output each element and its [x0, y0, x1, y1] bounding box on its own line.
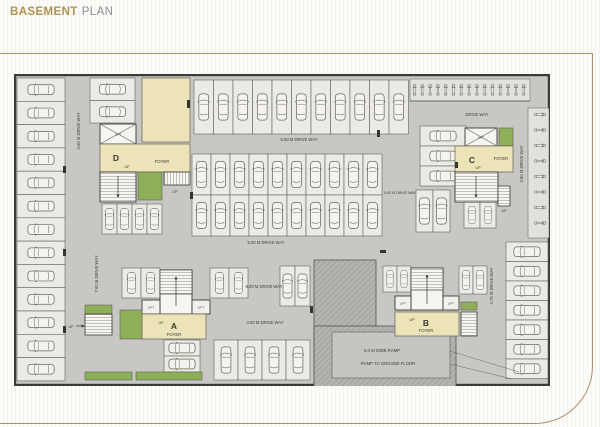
car-icon	[514, 246, 540, 258]
parking-stall	[17, 311, 65, 334]
car-icon	[127, 273, 136, 294]
stairs-a-entry	[85, 314, 112, 335]
car-icon	[282, 274, 293, 298]
car-icon	[196, 202, 208, 228]
parking-stall	[350, 80, 370, 134]
car-icon	[436, 198, 448, 224]
car-icon	[348, 202, 360, 228]
car-icon	[291, 202, 303, 228]
car-icon	[348, 161, 360, 187]
car-icon	[329, 161, 341, 187]
lift-a-left-label: LIFT	[148, 306, 154, 310]
label-driveway-280: 2.80 M DRIVE WAY	[519, 145, 524, 182]
car-icon	[28, 294, 54, 306]
parking-stall	[17, 334, 65, 357]
parking-stall	[141, 268, 160, 298]
parking-stall	[389, 80, 409, 134]
block-a-label: A	[171, 321, 177, 331]
parking-stall	[17, 288, 65, 311]
parking-stall	[233, 80, 253, 134]
car-icon	[234, 273, 243, 294]
parking-stall	[249, 195, 268, 236]
label-ramp-dest: RAMP TO GROUND FLOOR	[361, 361, 415, 366]
car-icon	[150, 209, 159, 230]
parking-stall	[306, 195, 325, 236]
parking-stall	[363, 154, 382, 195]
car-icon	[28, 247, 54, 259]
landscape-a-entry	[85, 305, 112, 314]
page-background: { "header": { "title_bold": "BASEMENT", …	[0, 0, 600, 427]
column-marker	[190, 192, 193, 199]
car-icon	[310, 161, 322, 187]
car-icon	[476, 271, 484, 290]
car-icon	[105, 209, 114, 230]
label-driveway-760: 7.60 M DRIVE WAY	[94, 255, 99, 292]
car-icon	[354, 94, 366, 120]
landscape-strip	[85, 372, 132, 380]
parking-stall	[506, 320, 548, 340]
car-icon	[334, 94, 346, 120]
parking-stall	[344, 154, 363, 195]
parking-stall	[211, 154, 230, 195]
parking-stall	[370, 80, 390, 134]
car-icon	[99, 83, 125, 95]
car-icon	[28, 224, 54, 236]
basement-floor-plan: 4.50 M DRIVE WAY 7.60 M DRIVE WAY 2.80 M…	[14, 74, 550, 386]
parking-stall	[420, 126, 466, 146]
stairs-b-entry	[461, 312, 477, 336]
car-icon	[28, 130, 54, 142]
car-icon	[400, 270, 408, 287]
parking-stall	[506, 359, 548, 379]
car-icon	[28, 107, 54, 119]
car-icon	[329, 202, 341, 228]
parking-stall	[506, 281, 548, 301]
parking-stall	[459, 266, 473, 294]
car-icon	[28, 317, 54, 329]
parking-stall	[17, 148, 65, 171]
lift-a-right-label: LIFT	[198, 306, 204, 310]
car-icon	[514, 304, 540, 316]
car-icon	[514, 324, 540, 336]
stairs-c-side	[498, 186, 510, 206]
label-driveway-400: 4.00 M DRIVE WAY	[247, 320, 284, 325]
car-icon	[393, 94, 405, 120]
parking-stall	[325, 195, 344, 236]
label-driveway-450: 4.50 M DRIVE WAY	[76, 112, 81, 149]
parking-stall	[17, 195, 65, 218]
parking-stall	[464, 202, 480, 228]
parking-stall	[102, 204, 117, 234]
block-c-label: C	[469, 155, 475, 165]
parking-stall	[506, 242, 548, 262]
car-icon	[514, 343, 540, 355]
column-marker	[63, 166, 66, 173]
car-icon	[468, 206, 476, 223]
ramp-slab	[332, 332, 450, 378]
car-icon	[291, 161, 303, 187]
parking-stall	[268, 195, 287, 236]
car-icon	[272, 202, 284, 228]
parking-stall	[473, 266, 487, 294]
parking-stall	[433, 190, 450, 232]
parking-stall	[164, 356, 200, 372]
car-icon	[373, 94, 385, 120]
car-icon	[28, 84, 54, 96]
parking-stall	[117, 204, 132, 234]
parking-stall	[210, 268, 229, 298]
car-icon	[28, 340, 54, 352]
parking-stall	[506, 301, 548, 321]
parking-stall	[295, 266, 310, 306]
parking-stall	[90, 101, 135, 124]
parking-stall	[344, 195, 363, 236]
car-icon	[514, 363, 540, 375]
parking-stall	[268, 154, 287, 195]
car-icon	[253, 202, 265, 228]
column-marker	[377, 130, 380, 137]
car-icon	[295, 94, 307, 120]
parking-stall	[194, 80, 214, 134]
block-b-label: B	[423, 318, 429, 328]
car-icon	[244, 347, 256, 373]
lift-b-right-label: LIFT	[448, 302, 454, 306]
parking-stall	[214, 80, 234, 134]
car-icon	[430, 170, 456, 182]
parking-stall	[90, 78, 135, 101]
parking-stall	[17, 125, 65, 148]
car-icon	[430, 130, 456, 142]
column-marker	[380, 250, 386, 253]
parking-stall	[238, 340, 262, 380]
foyer-b-label: FOYER	[419, 328, 433, 333]
door-marker	[455, 162, 458, 168]
car-icon	[28, 270, 54, 282]
foyer-c-label: FOYER	[494, 156, 508, 161]
car-icon	[484, 206, 492, 223]
parking-stall	[292, 80, 312, 134]
car-icon	[276, 94, 288, 120]
parking-stall	[325, 154, 344, 195]
car-icon	[419, 198, 431, 224]
up-d-label: UP	[125, 165, 131, 169]
car-icon	[253, 161, 265, 187]
foyer-d-tower	[142, 78, 190, 142]
up-c-side-label: UP	[502, 209, 508, 213]
car-icon	[28, 177, 54, 189]
landscape-a	[120, 310, 142, 339]
parking-stall	[262, 340, 286, 380]
car-icon	[220, 347, 232, 373]
parking-stall	[192, 195, 211, 236]
parking-stall	[311, 80, 331, 134]
stairs-c	[455, 172, 498, 202]
parking-stall	[229, 268, 248, 298]
car-icon	[120, 209, 129, 230]
landscape-c	[499, 128, 513, 146]
page-title-light: PLAN	[82, 6, 114, 18]
car-icon	[28, 200, 54, 212]
parking-stall	[286, 340, 310, 380]
lift-d-label: LIFT	[115, 133, 121, 137]
basement-plan: 4.50 M DRIVE WAY 7.60 M DRIVE WAY 2.80 M…	[14, 74, 550, 386]
car-icon	[215, 161, 227, 187]
car-icon	[198, 94, 210, 120]
car-icon	[297, 274, 308, 298]
label-ramp-width: 6.0 M WIDE RAMP	[364, 348, 400, 353]
column-marker	[63, 249, 66, 256]
car-icon	[135, 209, 144, 230]
up-b-label: UP	[410, 318, 416, 322]
parking-stall	[211, 195, 230, 236]
car-icon	[462, 271, 470, 290]
car-icon	[99, 106, 125, 118]
parking-stall	[192, 154, 211, 195]
page-title: BASEMENTPLAN	[10, 6, 113, 18]
parking-stall	[214, 340, 238, 380]
car-icon	[217, 94, 229, 120]
parking-stall	[480, 202, 496, 228]
lift-b-left-label: LIFT	[400, 302, 406, 306]
parking-stall	[164, 340, 200, 356]
parking-stall	[230, 154, 249, 195]
car-icon	[169, 342, 195, 354]
label-driveway-500-low: 5.00 M DRIVE WAY	[248, 240, 285, 245]
page-title-accent: BASEMENT	[10, 6, 78, 18]
parking-stall	[122, 268, 141, 298]
two-wheeler-bay-right	[528, 108, 549, 238]
car-icon	[234, 202, 246, 228]
parking-stall	[506, 262, 548, 282]
landscape-b	[461, 302, 477, 310]
label-driveway-475: 4.75 M DRIVE WAY	[489, 267, 494, 304]
parking-stall	[287, 154, 306, 195]
parking-stall	[416, 190, 433, 232]
parking-stall	[306, 154, 325, 195]
car-icon	[430, 150, 456, 162]
car-icon	[268, 347, 280, 373]
parking-stall	[230, 195, 249, 236]
parking-stall	[147, 204, 162, 234]
car-icon	[514, 265, 540, 277]
car-icon	[310, 202, 322, 228]
car-icon	[28, 154, 54, 166]
label-driveway-500-top: 5.00 M DRIVE WAY	[281, 137, 318, 142]
car-icon	[215, 202, 227, 228]
foyer-d-label: FOYER	[155, 159, 169, 164]
parking-stall	[506, 340, 548, 360]
up-a-label: UP	[159, 321, 165, 325]
door-marker	[187, 100, 190, 108]
car-icon	[386, 270, 394, 287]
car-icon	[234, 161, 246, 187]
label-driveway-500-mid: 5.00 M DRIVE WAY	[384, 191, 416, 195]
parking-stall	[132, 204, 147, 234]
lift-c-label: LIFT	[478, 136, 484, 140]
column-marker	[63, 326, 66, 333]
label-driveway-topright: DRIVE WAY	[465, 112, 488, 117]
parking-stall	[17, 358, 65, 381]
up-d-side-label: UP	[173, 190, 179, 194]
parking-stall	[17, 78, 65, 101]
parking-stall	[17, 101, 65, 124]
up-c-label: UP	[476, 166, 482, 170]
parking-stall	[331, 80, 351, 134]
car-icon	[367, 161, 379, 187]
column-marker	[310, 306, 313, 313]
parking-stall	[383, 266, 397, 292]
car-icon	[292, 347, 304, 373]
stairs-d-side	[164, 172, 190, 185]
label-driveway-600: 6.00 M DRIVE WAY	[246, 284, 283, 289]
up-a-entry-label: UP	[69, 325, 75, 329]
parking-stall	[397, 266, 411, 292]
parking-stall	[272, 80, 292, 134]
car-icon	[28, 363, 54, 375]
parking-stall	[249, 154, 268, 195]
parking-stall	[17, 241, 65, 264]
parking-stall	[363, 195, 382, 236]
foyer-a-label: FOYER	[167, 332, 181, 337]
car-icon	[196, 161, 208, 187]
block-d-label: D	[113, 153, 119, 163]
car-icon	[256, 94, 268, 120]
car-icon	[367, 202, 379, 228]
car-icon	[514, 285, 540, 297]
car-icon	[146, 273, 155, 294]
car-icon	[215, 273, 224, 294]
parking-stall	[287, 195, 306, 236]
parking-stall	[17, 218, 65, 241]
landscape-strip	[136, 372, 202, 380]
car-icon	[237, 94, 249, 120]
parking-stall	[17, 264, 65, 287]
landscape-d	[138, 172, 162, 200]
parking-stall	[17, 171, 65, 194]
car-icon	[272, 161, 284, 187]
car-icon	[169, 358, 195, 370]
parking-stall	[253, 80, 273, 134]
car-icon	[315, 94, 327, 120]
